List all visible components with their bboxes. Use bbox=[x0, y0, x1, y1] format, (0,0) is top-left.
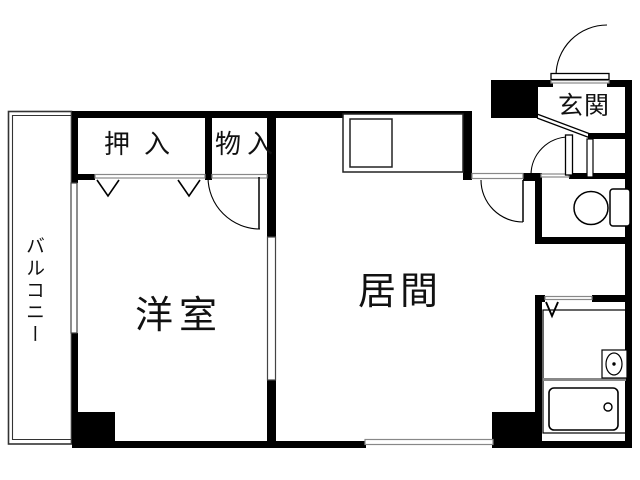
wall-hall-left bbox=[463, 111, 472, 180]
closet-door-v-icon bbox=[97, 180, 119, 196]
wall-genkan-corner-block bbox=[491, 80, 538, 118]
wall-left-lower bbox=[72, 333, 78, 412]
wall-left-upper bbox=[72, 111, 78, 183]
hall-alcove-partition bbox=[587, 139, 593, 177]
toilet-door-arc bbox=[531, 137, 569, 175]
bath-door-v-icon bbox=[546, 302, 558, 316]
closet-sliding-track bbox=[95, 175, 205, 179]
label-western-room: 洋室 bbox=[135, 296, 223, 334]
entrance-threshold bbox=[551, 81, 609, 84]
toilet-tank-icon bbox=[610, 189, 630, 226]
storage-door-arc bbox=[208, 177, 260, 229]
kitchen-door-lintel bbox=[472, 174, 523, 179]
floor-plan-drawing bbox=[0, 0, 640, 480]
wall-closet-divider bbox=[205, 111, 212, 180]
balcony-window bbox=[71, 183, 77, 333]
wall-toilet-top bbox=[569, 173, 632, 179]
entrance-door-arc bbox=[556, 25, 607, 76]
toilet-threshold bbox=[541, 174, 569, 177]
wall-genkan-bottom bbox=[588, 133, 632, 139]
living-window bbox=[365, 440, 493, 445]
wall-room-divider-lower bbox=[267, 380, 276, 448]
toilet-door-leaf bbox=[566, 135, 573, 175]
closet-door-v-icon bbox=[178, 180, 200, 196]
label-storage: 物入 bbox=[215, 132, 279, 158]
wall-closet-corner bbox=[72, 174, 95, 180]
wall-bottom-right bbox=[540, 441, 632, 448]
entrance-door-leaf bbox=[551, 74, 609, 80]
washbasin-faucet-dot bbox=[612, 362, 615, 365]
label-entrance: 玄関 bbox=[558, 93, 610, 118]
wall-bottom-left bbox=[72, 441, 366, 448]
room-sliding-door bbox=[268, 237, 276, 380]
bathtub-drain-icon bbox=[604, 403, 612, 411]
wall-pillar-south bbox=[492, 412, 540, 448]
living-door-arc bbox=[481, 180, 523, 222]
wall-toilet-left bbox=[535, 173, 542, 244]
toilet-bowl-icon bbox=[574, 192, 608, 225]
label-living-room: 居間 bbox=[358, 272, 442, 310]
floor-plan: バルコニー 押入 物入 玄関 洋室 居間 bbox=[0, 0, 640, 480]
label-closet: 押入 bbox=[104, 132, 184, 158]
label-balcony: バルコニー bbox=[24, 236, 43, 366]
wall-bath-top-right bbox=[592, 295, 632, 302]
wall-toilet-bottom bbox=[535, 237, 632, 244]
bath-threshold bbox=[545, 297, 592, 300]
kitchen-sink-icon bbox=[350, 119, 392, 167]
